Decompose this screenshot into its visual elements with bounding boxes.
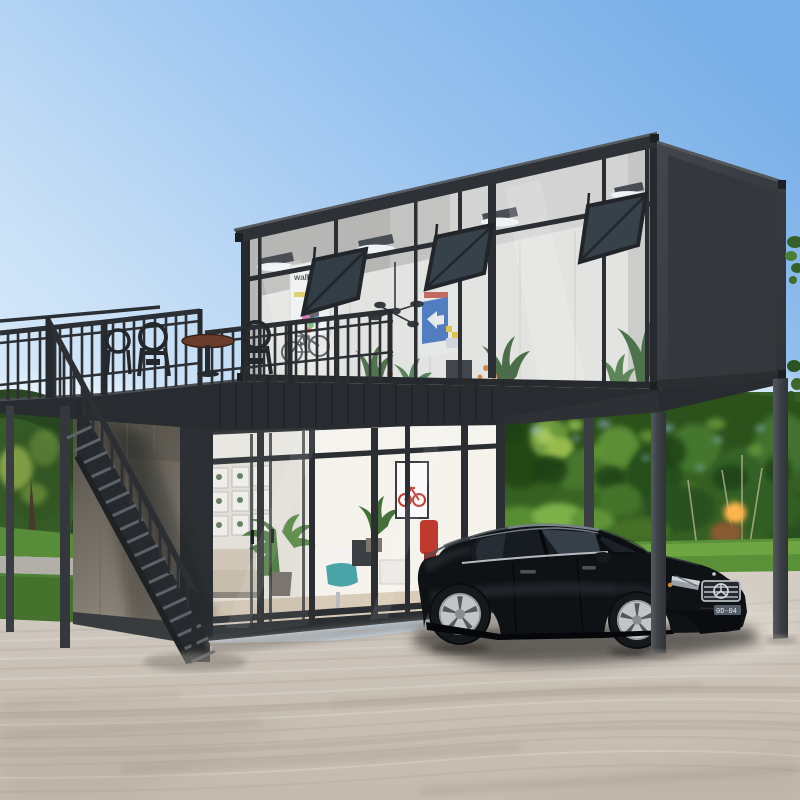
svg-text:0D-04: 0D-04 — [716, 608, 737, 616]
